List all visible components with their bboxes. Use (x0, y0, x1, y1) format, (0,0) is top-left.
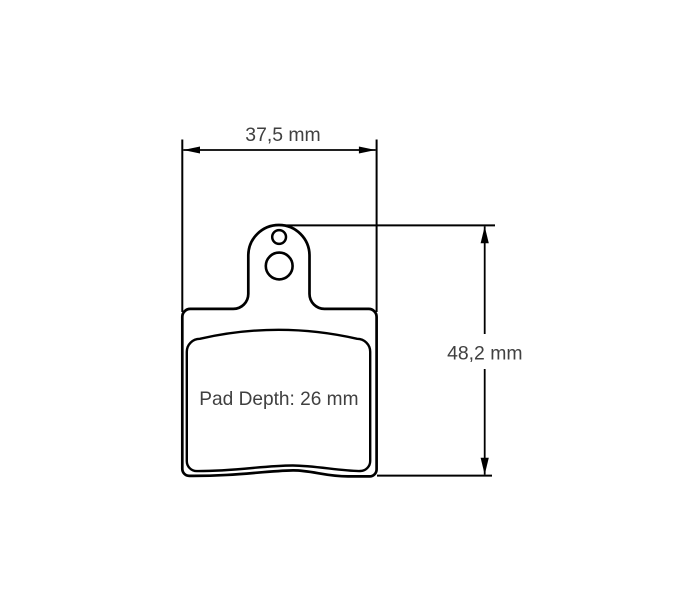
svg-text:Pad Depth: 26 mm: Pad Depth: 26 mm (199, 389, 358, 410)
svg-text:48,2 mm: 48,2 mm (447, 343, 522, 365)
svg-text:37,5 mm: 37,5 mm (245, 124, 320, 146)
